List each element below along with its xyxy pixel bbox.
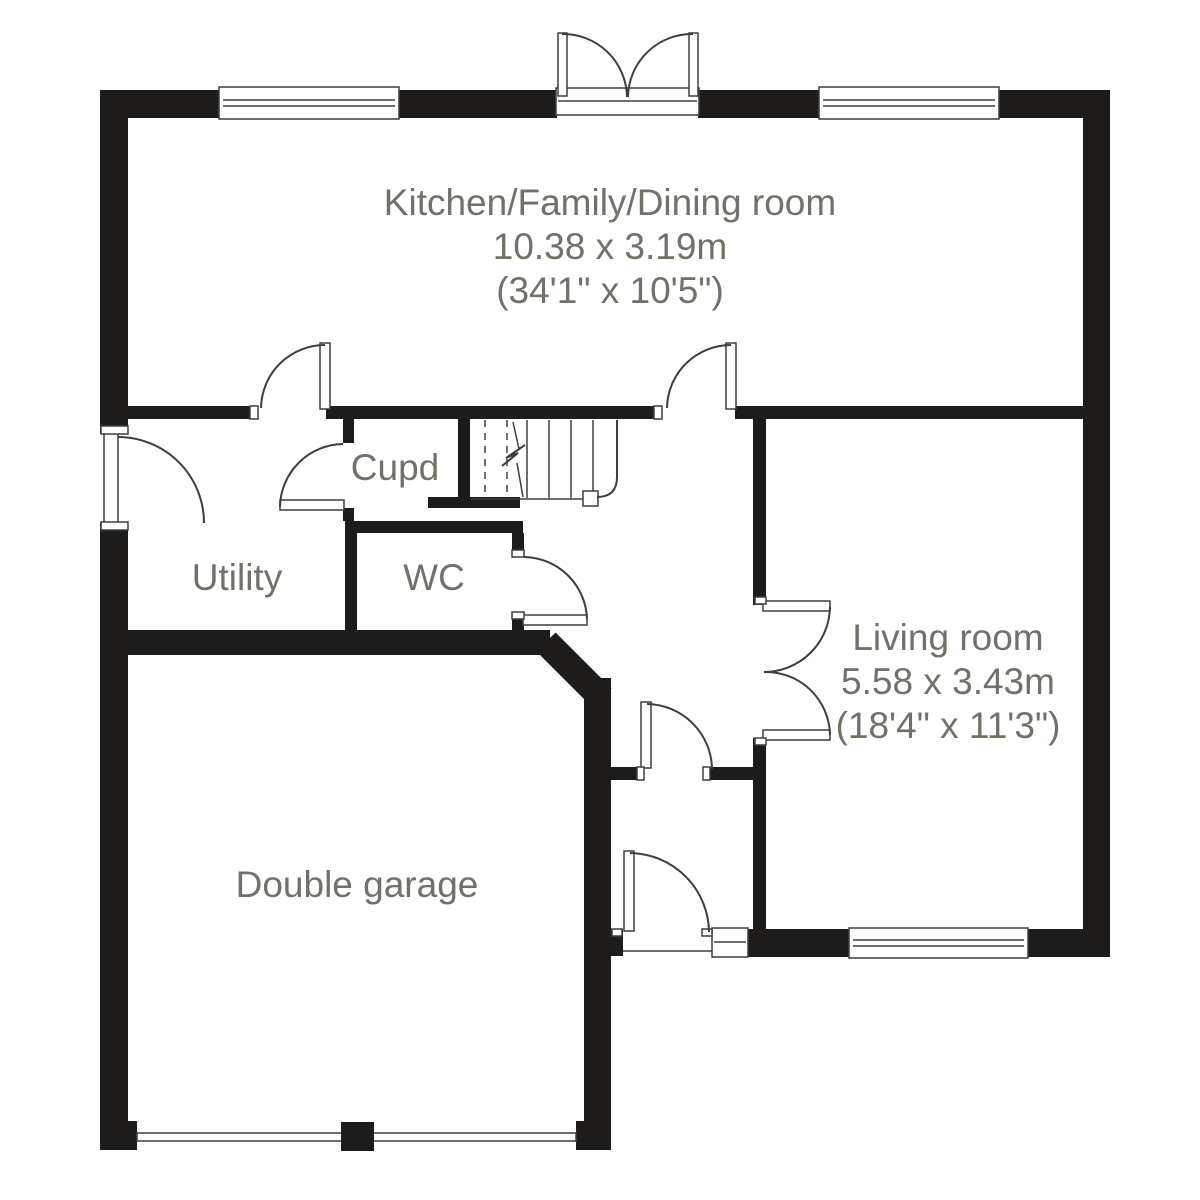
- room-label-utility: Utility: [192, 557, 283, 598]
- door-jamb: [654, 406, 662, 419]
- cupboard-stub-upper: [343, 419, 354, 443]
- french-door-right-leaf: [689, 33, 698, 96]
- living-south-wall-a: [748, 929, 850, 957]
- hall-south-wall: [345, 521, 523, 533]
- kitchen-south-wall-b: [326, 406, 662, 419]
- stairs-newel: [583, 491, 598, 506]
- door-jamb: [101, 522, 128, 530]
- left-wall-foot: [100, 1121, 137, 1150]
- wc-door-leaf: [523, 615, 587, 625]
- east-wall: [1083, 90, 1110, 957]
- top-wall-b: [398, 90, 557, 118]
- door-jamb: [755, 738, 766, 745]
- room-label-wc: WC: [403, 557, 465, 598]
- door-jamb: [250, 406, 258, 419]
- living-door-lower-leaf: [763, 730, 830, 740]
- room-dimensions-living-room: 5.58 x 3.43m: [841, 661, 1055, 702]
- room-dimensions-living-room: (18'4" x 11'3"): [836, 705, 1061, 746]
- door-jamb: [637, 767, 644, 780]
- garage-door-pier: [341, 1122, 374, 1151]
- french-door-left-leaf: [558, 33, 567, 96]
- kitchen-door-a-leaf: [320, 343, 330, 409]
- floor-plan: Kitchen/Family/Dining room10.38 x 3.19m(…: [0, 0, 1200, 1200]
- door-jamb: [702, 929, 712, 936]
- stairs-west-wall: [458, 419, 470, 500]
- living-west-wall-lower: [753, 738, 766, 930]
- room-label-cupboard: Cupd: [351, 447, 439, 488]
- room-label-living-room: Living room: [852, 617, 1043, 658]
- door-jamb: [512, 550, 524, 557]
- living-west-wall-upper: [753, 419, 766, 605]
- corridor-north-wall-a: [607, 767, 637, 780]
- window-top-left: [219, 87, 399, 119]
- kitchen-south-wall-c: [735, 406, 1083, 419]
- floor-plan-page: Kitchen/Family/Dining room10.38 x 3.19m(…: [0, 0, 1200, 1200]
- room-label-double-garage: Double garage: [236, 864, 479, 905]
- door-jamb: [755, 597, 766, 604]
- corridor-north-wall-b: [710, 767, 753, 780]
- corridor-door-leaf: [641, 702, 651, 768]
- room-dimensions-kitchen: 10.38 x 3.19m: [493, 226, 727, 267]
- front-door-leaf: [104, 433, 118, 523]
- door-jamb: [512, 612, 524, 619]
- room-label-kitchen: Kitchen/Family/Dining room: [384, 182, 836, 223]
- kitchen-door-b-leaf: [726, 343, 736, 409]
- living-south-wall-b: [1027, 929, 1110, 957]
- garage-east-wall: [584, 678, 611, 1150]
- left-wall-lower: [100, 523, 128, 1123]
- back-door-leaf: [624, 851, 634, 931]
- door-jamb: [703, 767, 710, 780]
- garage-east-wall-foot: [576, 1121, 611, 1150]
- door-jamb: [612, 929, 622, 936]
- window-top-right: [819, 87, 999, 119]
- cupboard-door-leaf: [280, 500, 344, 510]
- room-dimensions-kitchen: (34'1" x 10'5"): [496, 270, 724, 311]
- garage-north-wall: [128, 630, 550, 655]
- door-jamb: [101, 426, 128, 434]
- living-door-upper-leaf: [763, 601, 830, 611]
- kitchen-south-wall-a: [128, 406, 258, 419]
- left-wall-upper: [100, 90, 128, 433]
- window-living-south: [849, 928, 1028, 958]
- top-wall-c: [698, 90, 820, 118]
